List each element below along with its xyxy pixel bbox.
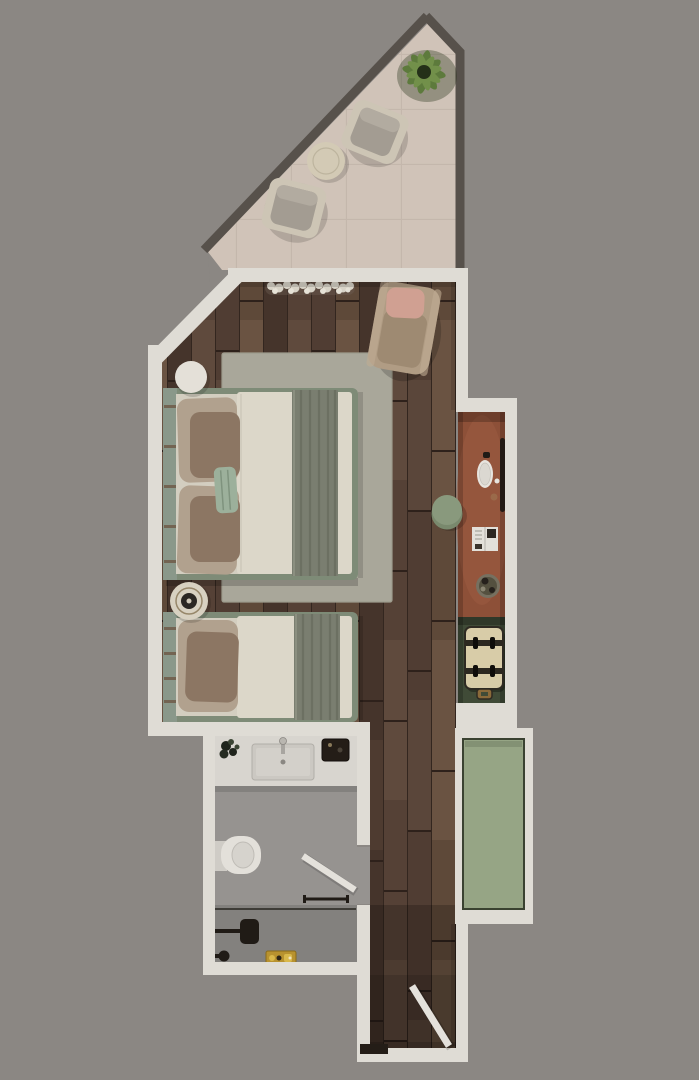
wall-bedroom-top (228, 268, 468, 282)
wall-corridor-right (456, 922, 468, 1062)
single-bed (163, 612, 363, 722)
bathroom-door-opening (357, 847, 370, 904)
wardrobe-panel (463, 739, 524, 909)
pink-cushion (386, 287, 426, 319)
wall-vanity-right (505, 398, 517, 715)
bed-blanket (292, 390, 338, 576)
sink-drain (281, 760, 286, 765)
wall-bedroom-bottom (148, 722, 370, 736)
suitcase (465, 627, 505, 699)
wall-niche-bottom (456, 703, 517, 730)
wall-rail (500, 438, 505, 512)
decor-bowl (476, 574, 500, 598)
luggage-niche (458, 617, 505, 703)
wall-left (148, 345, 162, 736)
accent-pillow (213, 466, 238, 513)
copper-cup (491, 494, 498, 501)
sink-faucet (280, 738, 287, 745)
bed-pillows (178, 620, 239, 712)
wall-bathroom-bottom (203, 962, 370, 975)
bed-blanket (294, 614, 340, 720)
magazine (472, 527, 498, 551)
double-bed (163, 388, 363, 586)
wall-bathroom-right-lower (357, 905, 370, 1048)
floor-plan-render (0, 0, 699, 1080)
amenity-tray (322, 739, 349, 761)
wall-bathroom-right-upper (357, 722, 370, 845)
door-threshold (360, 1044, 388, 1054)
bed-headboard (163, 388, 177, 580)
bathroom (215, 736, 357, 965)
soap-dish (495, 479, 500, 484)
wall-bathroom-left (203, 722, 215, 975)
wall-hung-toilet (215, 836, 261, 874)
wall-bedroom-right (456, 268, 468, 412)
basin-faucet (483, 452, 490, 458)
